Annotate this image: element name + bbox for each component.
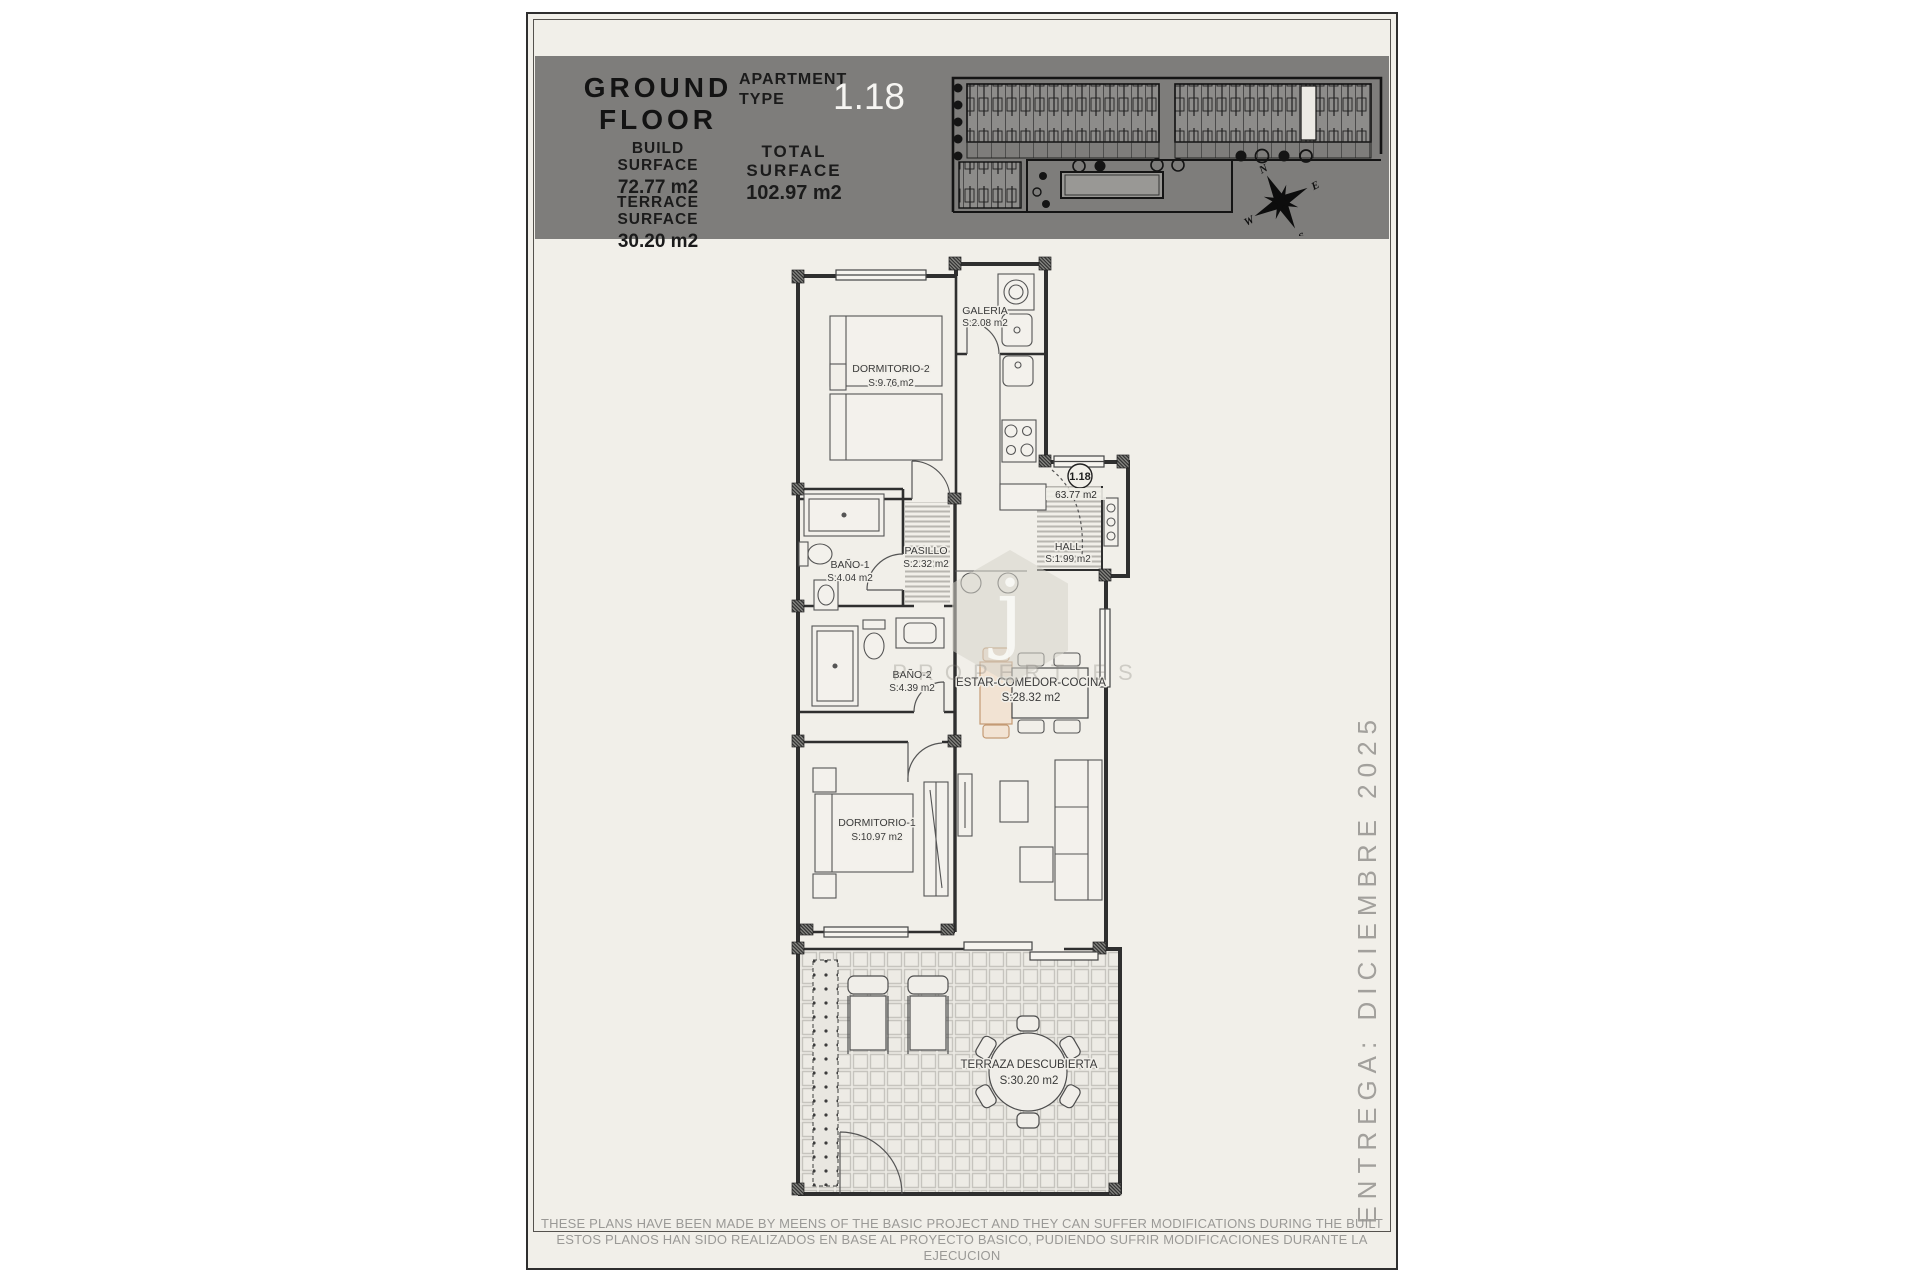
terrace-surface-value: 30.20 m2 [593, 231, 723, 253]
room-label-bano-1: BAÑO-1 S:4.04 m2 [827, 558, 873, 584]
svg-text:DORMITORIO-2: DORMITORIO-2 [852, 363, 930, 375]
building-row-icon [959, 84, 1371, 208]
svg-text:S:10.97 m2: S:10.97 m2 [851, 832, 903, 843]
footer-line-en: THESE PLANS HAVE BEEN MADE BY MEENS OF T… [528, 1216, 1396, 1232]
floor-plan: 1.18 63.77 m2 DORMITORIO-2 S:9.76 m2 GAL… [784, 254, 1164, 1216]
svg-text:PASILLO: PASILLO [905, 545, 948, 557]
svg-text:BAÑO-2: BAÑO-2 [892, 668, 931, 681]
floor-title: GROUND FLOOR [563, 72, 753, 137]
highlighted-unit [1301, 86, 1316, 140]
total-surface-value: 102.97 m2 [731, 182, 857, 205]
unit-badge-number: 1.18 [1069, 471, 1090, 483]
compass-w: W [1242, 213, 1257, 229]
svg-text:S:30.20 m2: S:30.20 m2 [1000, 1075, 1059, 1087]
svg-text:BAÑO-1: BAÑO-1 [830, 558, 869, 571]
total-surface: TOTAL SURFACE 102.97 m2 [731, 142, 857, 205]
compass-s: S [1296, 231, 1307, 236]
header-bar: GROUND FLOOR BUILD SURFACE 72.77 m2 TERR… [535, 56, 1389, 239]
floor-title-line2: FLOOR [563, 104, 753, 136]
svg-text:S:4.39 m2: S:4.39 m2 [889, 683, 935, 694]
svg-text:TERRAZA DESCUBIERTA: TERRAZA DESCUBIERTA [961, 1059, 1098, 1071]
svg-text:ESTAR-COMEDOR-COCINA: ESTAR-COMEDOR-COCINA [956, 677, 1106, 689]
site-plan: N E S W [949, 64, 1394, 236]
plan-sheet: GROUND FLOOR BUILD SURFACE 72.77 m2 TERR… [526, 12, 1398, 1270]
apartment-type: APARTMENT TYPE 1.18 [739, 70, 889, 118]
build-surface-label: BUILD SURFACE [593, 140, 723, 175]
total-surface-label: TOTAL SURFACE [731, 142, 857, 180]
hall-closet-icon [1104, 498, 1118, 546]
compass-n: N [1256, 162, 1270, 177]
svg-text:DORMITORIO-1: DORMITORIO-1 [838, 817, 916, 829]
svg-text:S:1.99 m2: S:1.99 m2 [1045, 554, 1091, 565]
svg-text:S:4.04 m2: S:4.04 m2 [827, 573, 873, 584]
footer-disclaimer: THESE PLANS HAVE BEEN MADE BY MEENS OF T… [528, 1216, 1396, 1264]
svg-text:S:9.76 m2: S:9.76 m2 [868, 378, 914, 389]
bathroom1-fixtures-icon [799, 494, 884, 610]
living-furniture-icon [958, 760, 1102, 900]
floor-title-line1: GROUND [563, 72, 753, 104]
unit-area-note: 63.77 m2 [1055, 490, 1097, 501]
sun-lounger-icon [848, 976, 888, 1054]
svg-text:S:2.08 m2: S:2.08 m2 [962, 318, 1008, 329]
apartment-type-value: 1.18 [833, 76, 905, 118]
room-label-bano-2: BAÑO-2 S:4.39 m2 [889, 668, 935, 694]
svg-text:S:28.32 m2: S:28.32 m2 [1002, 692, 1061, 704]
terrace-surface: TERRACE SURFACE 30.20 m2 [593, 194, 723, 253]
pool-area-icon [1027, 160, 1232, 212]
build-surface: BUILD SURFACE 72.77 m2 [593, 140, 723, 199]
kitchen-icons [955, 354, 1046, 593]
svg-text:GALERIA: GALERIA [962, 305, 1008, 317]
svg-text:HALL: HALL [1055, 541, 1081, 553]
compass-e: E [1309, 179, 1322, 194]
svg-text:S:2.32 m2: S:2.32 m2 [903, 559, 949, 570]
apartment-type-label: APARTMENT TYPE [739, 70, 831, 110]
terrace-surface-label: TERRACE SURFACE [593, 194, 723, 229]
sun-lounger-icon [908, 976, 948, 1054]
footer-line-es: ESTOS PLANOS HAN SIDO REALIZADOS EN BASE… [528, 1232, 1396, 1264]
unit-badge: 1.18 63.77 m2 [1046, 464, 1106, 501]
room-label-galeria: GALERIA S:2.08 m2 [962, 305, 1008, 329]
delivery-note: ENTREGA: DICIEMBRE 2025 [1352, 713, 1383, 1224]
